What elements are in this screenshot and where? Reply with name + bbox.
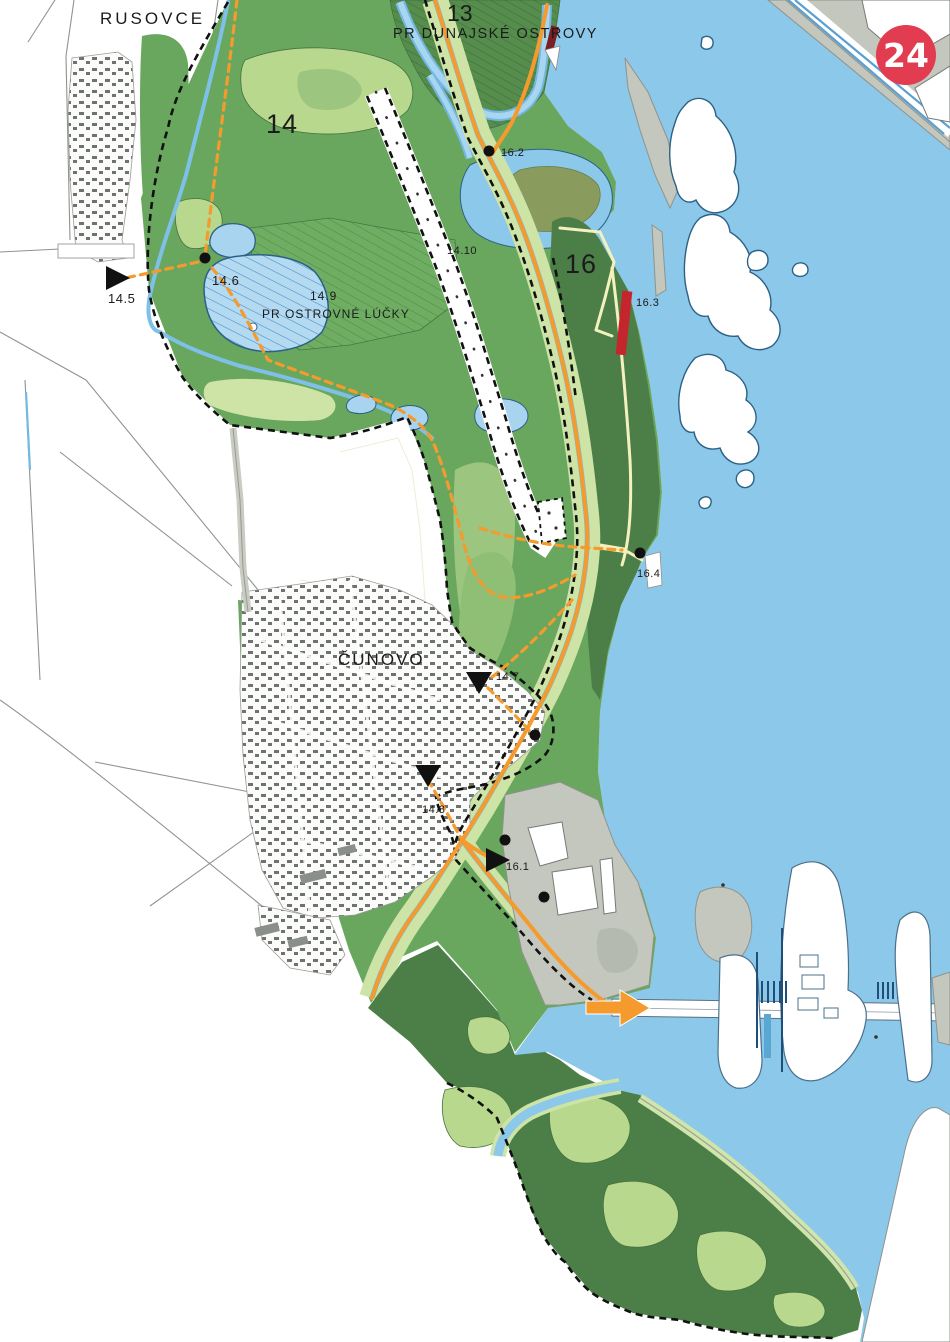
label-rusovce: RUSOVCE — [100, 9, 205, 28]
marker-dot-16-1 — [500, 835, 511, 846]
label-14-5: 14.5 — [108, 291, 135, 306]
label-16-1: 16.1 — [506, 861, 529, 873]
watermark-logo: 24 — [876, 25, 936, 85]
label-cunovo: ČUNOVO — [338, 650, 425, 669]
planning-map: RUSOVCE 13 PR DUNAJSKÉ OSTROVY 14 14.10 … — [0, 0, 950, 1342]
marker-dot-cunovo-east — [530, 730, 541, 741]
marker-dot-port — [539, 892, 550, 903]
lake-upper — [210, 224, 255, 258]
marker-dot-16-2 — [484, 146, 495, 157]
label-pr-dunajske-ostrovy: PR DUNAJSKÉ OSTROVY — [393, 25, 598, 42]
label-14-7: 14.7 — [496, 671, 519, 683]
label-16-2: 16.2 — [501, 147, 524, 159]
label-14-9: 14.9 — [310, 289, 337, 303]
marker-dot-14-6 — [200, 253, 211, 264]
label-pr-ostrovne-lucky: PR OSTROVNÉ LÚČKY — [262, 306, 410, 321]
label-14-10: 14.10 — [447, 245, 477, 257]
label-zone-13: 13 — [447, 0, 473, 26]
label-14-6: 14.6 — [212, 273, 239, 288]
label-zone-14: 14 — [266, 109, 298, 139]
marker-dot-16-4 — [635, 548, 646, 559]
label-16-3: 16.3 — [636, 297, 659, 309]
label-zone-16: 16 — [565, 249, 597, 279]
logo-text: 24 — [883, 36, 929, 75]
map-canvas: RUSOVCE 13 PR DUNAJSKÉ OSTROVY 14 14.10 … — [0, 0, 950, 1342]
label-14-8: 14.8 — [422, 804, 445, 816]
label-16-4: 16.4 — [637, 568, 660, 580]
